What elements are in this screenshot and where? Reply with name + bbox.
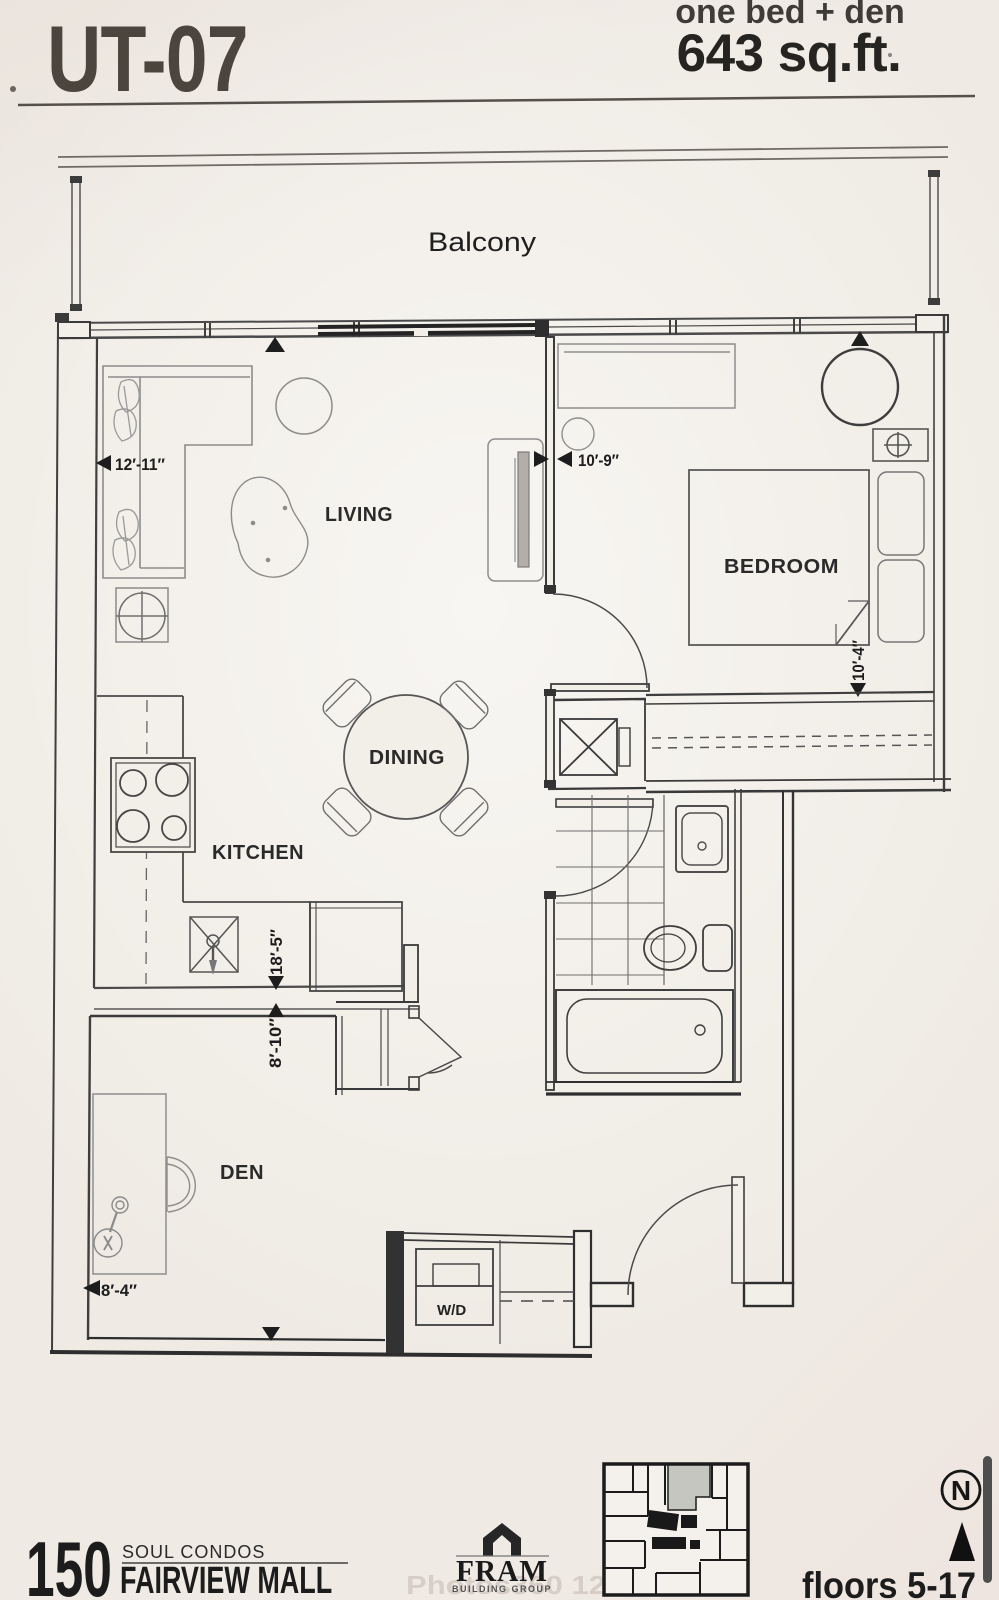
svg-text:BUILDING GROUP: BUILDING GROUP [452, 1584, 552, 1594]
svg-text:Balcony: Balcony [428, 227, 537, 257]
svg-text:12′-11″: 12′-11″ [115, 455, 165, 474]
svg-text:8′-4″: 8′-4″ [101, 1281, 137, 1300]
svg-text:10′-4″: 10′-4″ [849, 640, 868, 681]
svg-text:8′-10″: 8′-10″ [266, 1018, 285, 1068]
svg-text:FRAM: FRAM [456, 1553, 548, 1588]
svg-text:643 sq.ft.: 643 sq.ft. [677, 24, 902, 83]
svg-text:DEN: DEN [220, 1162, 264, 1184]
svg-text:FAIRVIEW MALL: FAIRVIEW MALL [120, 1558, 332, 1600]
svg-text:LIVING: LIVING [325, 504, 393, 526]
svg-text:N: N [951, 1475, 971, 1506]
svg-text:UT-07: UT-07 [47, 7, 248, 112]
svg-text:18′-5″: 18′-5″ [267, 929, 286, 975]
svg-text:W/D: W/D [437, 1302, 466, 1319]
svg-text:10′-9″: 10′-9″ [578, 451, 619, 470]
svg-text:150: 150 [26, 1526, 112, 1600]
svg-text:floors 5-17: floors 5-17 [802, 1565, 976, 1600]
svg-text:DINING: DINING [369, 747, 445, 769]
svg-text:BEDROOM: BEDROOM [724, 556, 839, 578]
svg-text:KITCHEN: KITCHEN [212, 842, 304, 864]
